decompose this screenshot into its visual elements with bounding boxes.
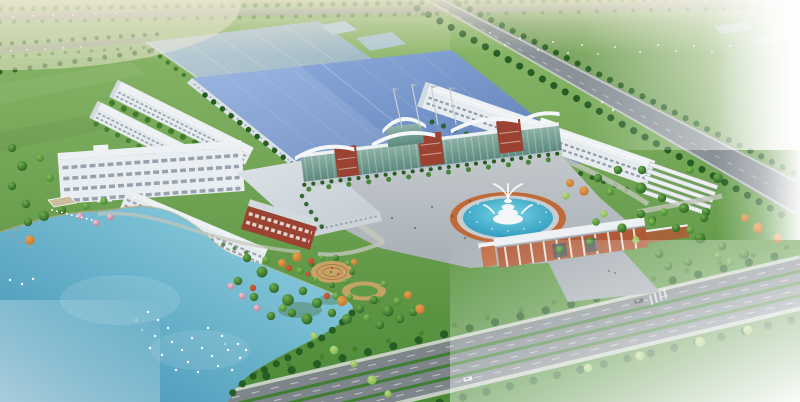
brick-block [496,119,524,154]
fountain-tier [498,209,518,217]
fade-bottom-left [0,300,160,402]
fade-bottom-right [450,240,800,402]
campus-rendering-svg [0,0,800,402]
fade-right-edge [716,0,800,240]
fountain-tier [502,204,515,210]
water-highlight [150,330,250,370]
aerial-rendering [0,0,800,402]
brick-block [334,145,359,177]
sand-circle-lawn [350,286,378,297]
